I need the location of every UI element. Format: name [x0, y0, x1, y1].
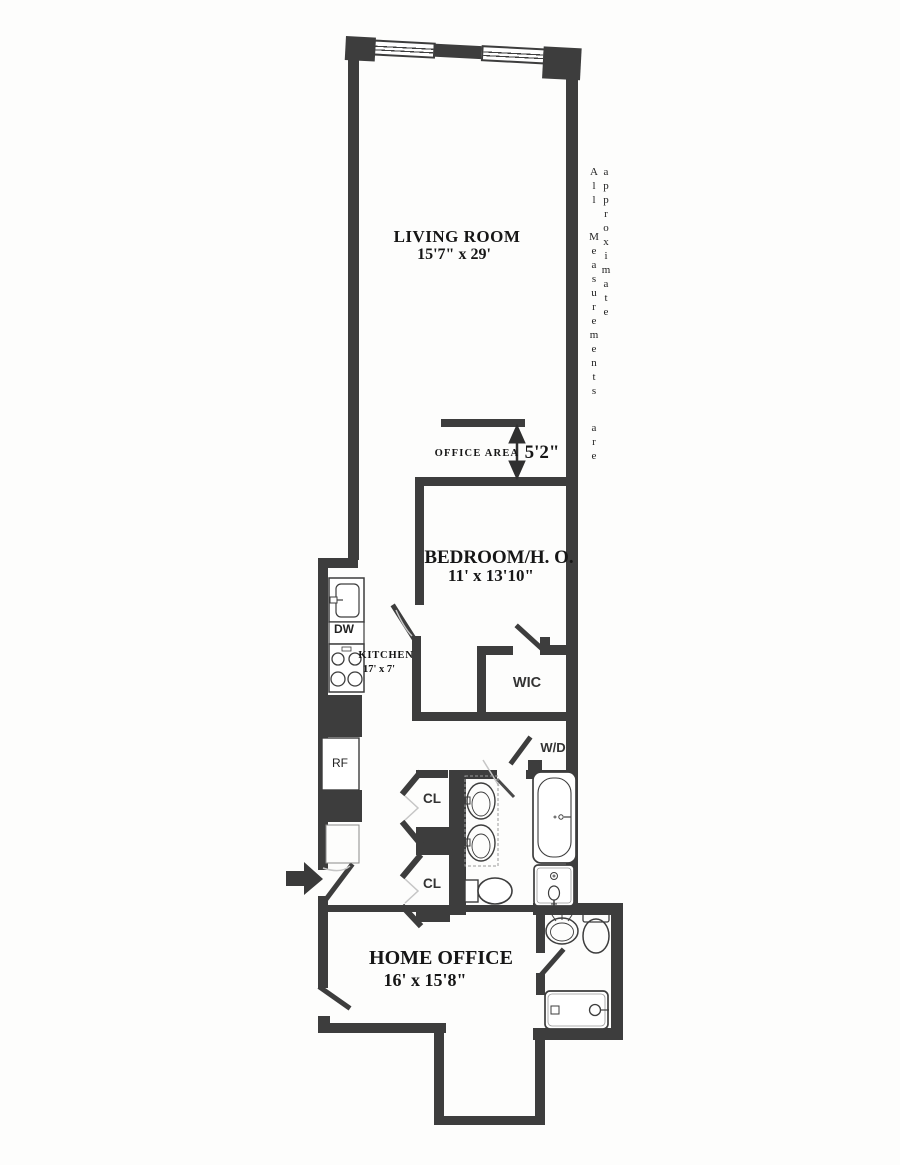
office-area-dim: 5'2" — [525, 443, 560, 462]
wd-door — [512, 739, 529, 762]
wic-door — [518, 627, 540, 647]
pedestal-sink-icon — [534, 865, 574, 906]
floor-plan: LIVING ROOM 15'7" x 29' OFFICE AREA 5'2"… — [0, 0, 900, 1165]
kitchen-label: KITCHEN — [358, 651, 413, 662]
bath1-door — [497, 779, 514, 797]
cabinet-box — [326, 825, 359, 863]
dishwasher-label: DW — [334, 623, 354, 635]
toilet-icon — [465, 878, 512, 904]
office-area-label: OFFICE AREA — [435, 449, 520, 460]
home-office-label: HOME OFFICE — [369, 948, 513, 968]
bath2-sink-icon — [546, 913, 578, 944]
kitchen-sink-icon — [329, 578, 364, 622]
closet1-bifold — [405, 796, 418, 820]
wd-label: W/D — [540, 741, 565, 754]
bath1-arc — [483, 760, 499, 786]
bedroom-label: BEDROOM/H. O. — [424, 548, 573, 567]
shower-icon — [545, 991, 609, 1029]
bathtub-icon — [533, 772, 576, 863]
closet1-label: CL — [423, 792, 441, 806]
home-office-door — [321, 988, 348, 1007]
kitchen-dims: 17' x 7' — [363, 665, 395, 676]
bedroom-dims: 11' x 13'10" — [448, 567, 534, 584]
living-room-label: LIVING ROOM — [394, 228, 521, 245]
closet2-bifold — [405, 879, 418, 903]
measurements-note: All Measurements are approximate — [588, 166, 612, 626]
vanity-icon — [465, 776, 498, 866]
home-office-dims: 16' x 15'8" — [384, 971, 467, 989]
bath2-toilet-icon — [583, 913, 609, 953]
wic-label: WIC — [513, 676, 541, 691]
closet2-label: CL — [423, 877, 441, 891]
bath2-door — [541, 951, 562, 975]
refrigerator-label: RF — [332, 757, 348, 769]
entry-arrow-icon — [286, 862, 323, 895]
living-room-dims: 15'7" x 29' — [417, 247, 491, 263]
